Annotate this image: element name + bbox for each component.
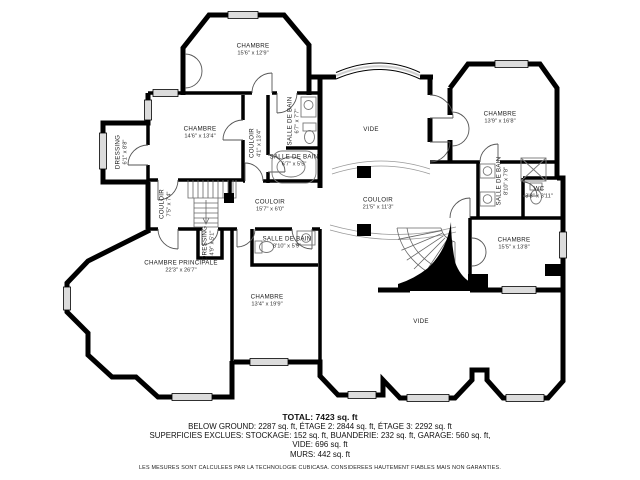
bay-window-arc	[336, 63, 420, 79]
summary-excluded: SUPERFICIES EXCLUES: STOCKAGE: 152 sq. f…	[0, 431, 640, 440]
floorplan-drawing	[0, 0, 640, 480]
summary-total: TOTAL: 7423 sq. ft	[0, 412, 640, 422]
summary-block: TOTAL: 7423 sq. ft BELOW GROUND: 2287 sq…	[0, 412, 640, 471]
summary-disclaimer: LES MESURES SONT CALCULEES PAR LA TECHNO…	[0, 465, 640, 471]
summary-vide: VIDE: 696 sq. ft	[0, 440, 640, 449]
summary-murs: MURS: 442 sq. ft	[0, 450, 640, 459]
summary-levels: BELOW GROUND: 2287 sq. ft, ÉTAGE 2: 2844…	[0, 422, 640, 431]
doors	[128, 54, 537, 266]
floorplan-page: CHAMBRE15'6" x 12'9"CHAMBRE14'6" x 13'4"…	[0, 0, 640, 480]
interior-walls	[148, 93, 563, 362]
exterior-walls	[67, 15, 563, 398]
bath-fixtures	[255, 97, 546, 253]
windows	[64, 12, 567, 402]
